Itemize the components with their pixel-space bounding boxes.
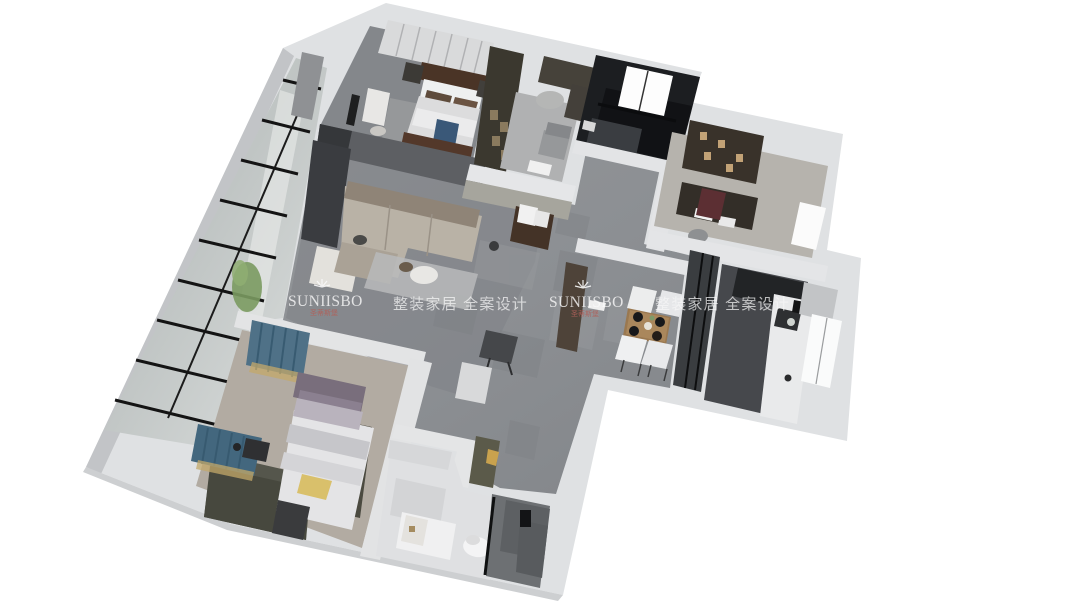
svg-text:整装家居 全案设计: 整装家居 全案设计: [655, 295, 790, 313]
svg-text:整装家居 全案设计: 整装家居 全案设计: [393, 295, 528, 313]
svg-text:SUNIISBO: SUNIISBO: [288, 293, 363, 310]
svg-text:圣蒂斯堡: 圣蒂斯堡: [571, 309, 599, 318]
svg-text:圣蒂斯堡: 圣蒂斯堡: [310, 308, 338, 317]
svg-text:SUNIISBO: SUNIISBO: [549, 294, 624, 311]
